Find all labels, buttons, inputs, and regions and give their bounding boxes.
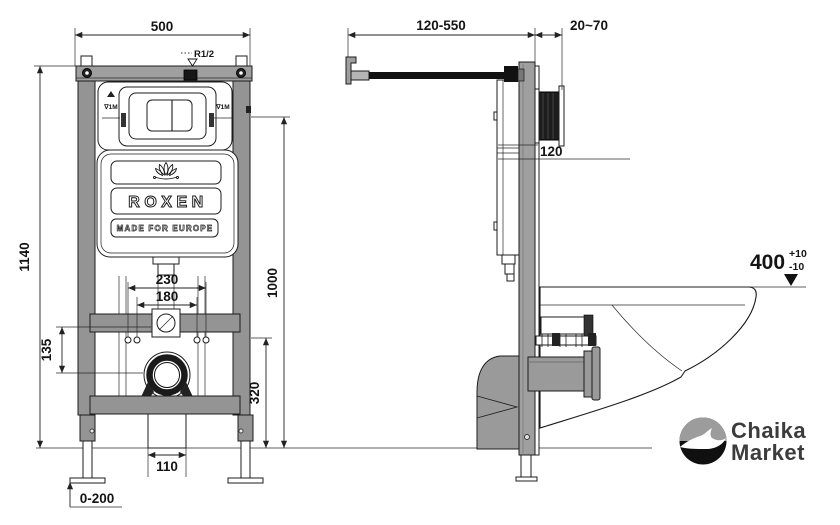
level-triangle-icon <box>188 59 197 66</box>
cistern: ROXEN MADE FOR EUROPE <box>97 150 238 275</box>
installation-drawing-svg: R1/2 ∇1M ∇1M <box>0 0 840 525</box>
water-mark-right: ∇1M <box>215 103 229 111</box>
flush-plate-assembly: ∇1M ∇1M <box>98 82 251 150</box>
drain-stub <box>148 414 186 448</box>
bowl-fixing-studs <box>536 315 596 347</box>
bowl-height-dim: 400 +10 -10 <box>750 248 807 286</box>
dim-wall-finish: 20~70 <box>570 18 608 33</box>
dim-plate-depth: 120 <box>540 144 563 159</box>
dim-foot-adjust: 0-200 <box>80 491 115 506</box>
brand-tagline: MADE FOR EUROPE <box>117 224 214 233</box>
dim-outlet-height: 320 <box>247 382 262 405</box>
drain-outlet <box>141 352 193 398</box>
dim-height: 1140 <box>17 242 32 271</box>
right-hanger-tab <box>236 56 247 67</box>
dim-flush-center-height: 1000 <box>265 268 280 298</box>
dim-bowl-height: 400 <box>750 251 785 274</box>
side-view: 120 <box>346 18 807 481</box>
water-mark-left: ∇1M <box>103 103 117 111</box>
top-bar <box>76 66 252 81</box>
inlet-valve-icon <box>184 70 197 80</box>
front-view: R1/2 ∇1M ∇1M <box>17 19 290 507</box>
drain-elbow <box>477 356 519 449</box>
flush-access-unit <box>535 86 564 146</box>
dim-studs-inner: 180 <box>156 289 179 304</box>
left-hanger-tab <box>81 56 92 67</box>
lower-cross-bar <box>90 396 240 414</box>
flush-buttons <box>147 100 192 131</box>
brand-name: ROXEN <box>128 194 207 211</box>
mounting-studs <box>125 337 209 343</box>
dim-rod-range: 120-550 <box>416 18 466 33</box>
dim-bracket-offset: 135 <box>39 338 54 361</box>
dim-bowl-tol-minus: -10 <box>789 261 804 273</box>
side-dimensions: 120-550 20~70 400 +10 -10 <box>348 18 807 286</box>
left-rail <box>78 81 95 415</box>
dim-width: 500 <box>151 19 174 34</box>
anchor-rod-bar <box>369 72 504 79</box>
brand-logo: Chaika Market <box>680 418 807 466</box>
dim-outlet-width: 110 <box>156 459 178 474</box>
technical-drawing: R1/2 ∇1M ∇1M <box>0 0 840 525</box>
brand-name-line2: Market <box>731 440 805 465</box>
left-leg <box>70 415 105 483</box>
right-leg <box>228 415 263 483</box>
frame-upright <box>519 62 535 455</box>
dim-studs-outer: 230 <box>156 272 179 287</box>
datum-triangle-icon <box>784 274 798 286</box>
dim-bowl-tol-plus: +10 <box>789 248 807 260</box>
cistern-side <box>494 80 519 281</box>
inlet-label: R1/2 <box>194 49 214 60</box>
